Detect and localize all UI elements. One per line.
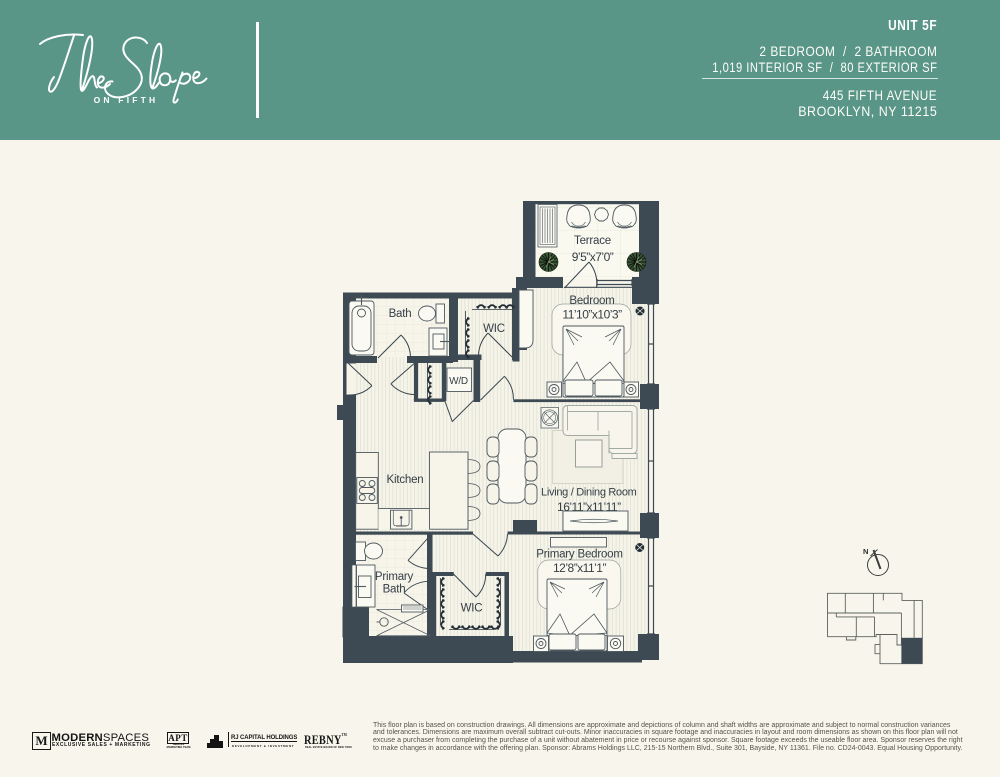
svg-text:11’10”x10’3”: 11’10”x10’3”: [562, 308, 622, 322]
svg-text:Terrace: Terrace: [574, 235, 611, 247]
svg-text:9’5”x7’0”: 9’5”x7’0”: [572, 250, 614, 264]
svg-text:W/D: W/D: [449, 376, 468, 387]
svg-text:Bedroom: Bedroom: [569, 295, 614, 307]
svg-text:Primary Bedroom: Primary Bedroom: [536, 549, 622, 561]
svg-text:16’11”x11’11”: 16’11”x11’11”: [557, 500, 621, 514]
svg-text:Bath: Bath: [383, 584, 406, 596]
svg-text:Bath: Bath: [389, 308, 412, 320]
svg-text:WIC: WIC: [483, 323, 505, 335]
svg-text:Kitchen: Kitchen: [387, 474, 424, 486]
svg-text:Living / Dining Room: Living / Dining Room: [541, 487, 637, 499]
svg-text:12’8”x11’1”: 12’8”x11’1”: [553, 561, 606, 575]
svg-text:Primary: Primary: [375, 571, 414, 583]
svg-text:N: N: [863, 547, 868, 556]
svg-text:WIC: WIC: [461, 603, 483, 615]
